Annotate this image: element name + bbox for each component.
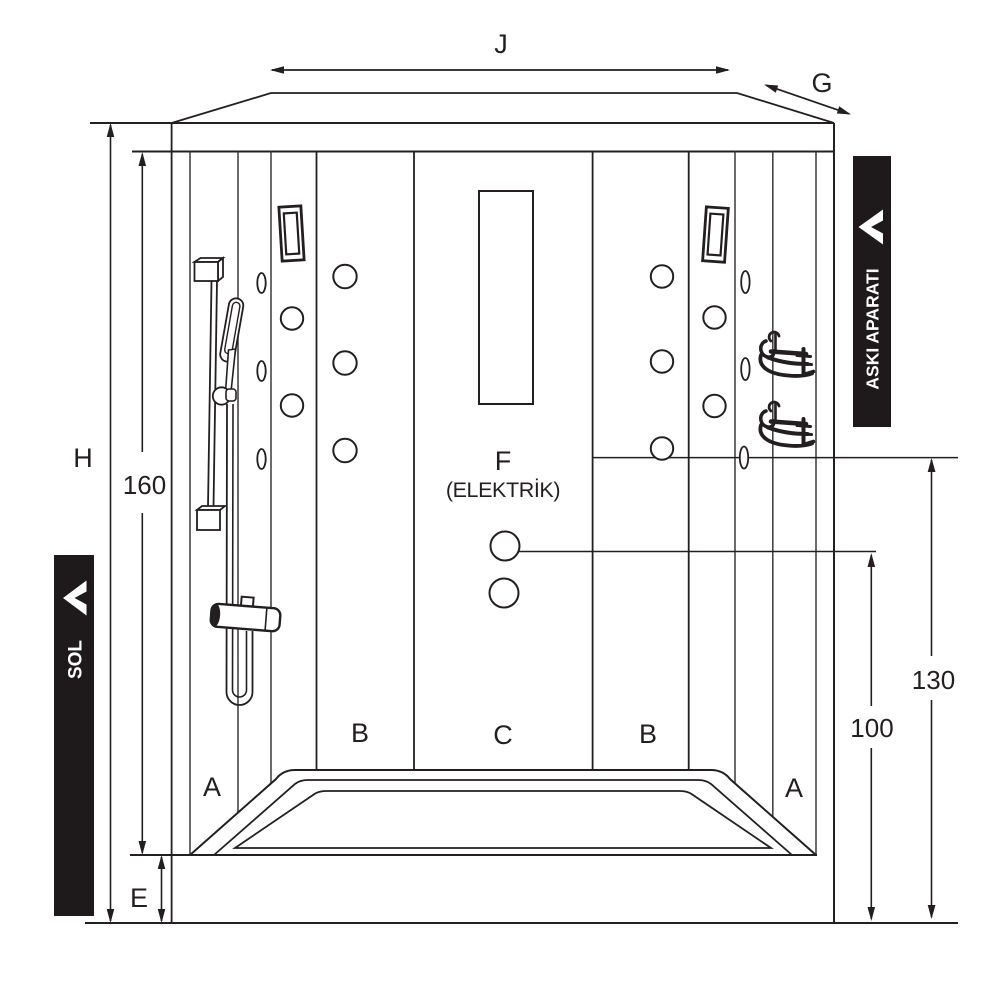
svg-text:ASKI APARATI: ASKI APARATI	[863, 268, 883, 389]
svg-text:A: A	[785, 773, 803, 803]
svg-text:J: J	[494, 29, 508, 59]
svg-text:B: B	[639, 719, 657, 749]
svg-text:SOL: SOL	[66, 640, 87, 679]
svg-text:F: F	[495, 446, 512, 476]
svg-text:H: H	[73, 443, 93, 473]
svg-text:G: G	[811, 68, 832, 98]
svg-text:130: 130	[912, 665, 955, 695]
svg-text:160: 160	[123, 470, 166, 500]
svg-text:100: 100	[850, 713, 893, 743]
svg-text:(ELEKTRİK): (ELEKTRİK)	[446, 478, 560, 502]
svg-text:B: B	[351, 718, 369, 748]
svg-text:C: C	[493, 720, 513, 750]
svg-text:A: A	[203, 772, 221, 802]
svg-text:E: E	[130, 883, 148, 913]
